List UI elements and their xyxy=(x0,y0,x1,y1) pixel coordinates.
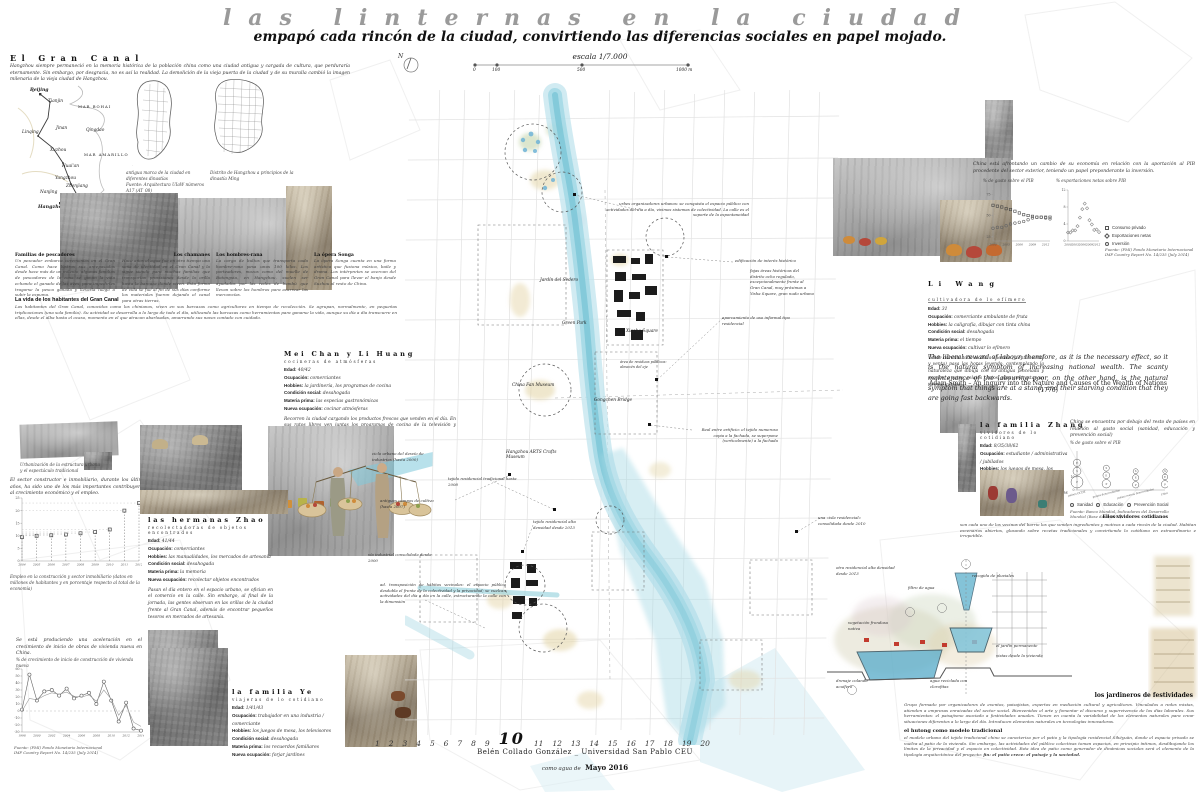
legend-label: Consumo privado xyxy=(1112,225,1146,230)
field-label: Ocupación: xyxy=(148,546,173,551)
field-label: Nueva ocupación: xyxy=(284,406,323,411)
mini-section-chamanes: Los chamanes Hace años el agua fue en ot… xyxy=(122,253,210,304)
chart-exportaciones-pib: 0481220002003200620092012 xyxy=(1056,186,1102,250)
legend-item: Consumo privado xyxy=(1105,224,1151,232)
plate-number: 18 xyxy=(663,739,673,748)
field-value: desahogada xyxy=(323,391,350,396)
svg-text:2012: 2012 xyxy=(134,563,142,567)
source-line: IMF Country Report No. 14/235 (July 2014… xyxy=(1105,252,1189,257)
figure-red xyxy=(988,486,998,500)
svg-text:10: 10 xyxy=(15,702,19,706)
scale-tick: 1000 m xyxy=(676,68,692,73)
mini-section-text: La carga de bultos que transporta cada h… xyxy=(216,258,308,298)
field-label: Edad: xyxy=(980,443,993,448)
svg-text:2011: 2011 xyxy=(120,563,129,567)
scale-tick: 500 xyxy=(577,68,585,73)
svg-text:S: S xyxy=(1105,466,1107,470)
svg-text:2012: 2012 xyxy=(1041,243,1050,247)
diamond-glyph-icon xyxy=(1104,233,1110,239)
mini-section-text: La ópera Songa cuenta en una forma artís… xyxy=(314,258,396,287)
china-label: Zhenjiang xyxy=(66,184,88,189)
poster-subtitle: empapó cada rincón de la ciudad, convirt… xyxy=(0,29,1200,45)
city-plan-map xyxy=(405,80,845,745)
profile-hermanas-zhao: las hermanas Zhao recolectadoras de obje… xyxy=(148,516,273,622)
svg-text:5: 5 xyxy=(17,547,19,551)
profile-field: Materia prima: la memoria xyxy=(148,569,273,577)
field-label: Ocupación: xyxy=(928,314,953,319)
svg-text:2007: 2007 xyxy=(61,563,70,567)
profile-field: Hobbies: las manualidades, los mercados … xyxy=(148,554,273,562)
plate-number: 13 xyxy=(571,739,581,748)
field-value: las manualidades, los mercados de artesa… xyxy=(169,555,271,560)
map-label-xiaohe-square: Xiaohe Square xyxy=(626,329,658,334)
svg-text:25: 25 xyxy=(15,496,19,500)
profile-subtitle: viajeras de lo cotidiano xyxy=(232,697,340,702)
mini-section-pescadores: Familias de pescadores Un pescador embar… xyxy=(15,253,115,298)
field-value: las especias gastronómicas xyxy=(316,399,378,404)
field-value: la caligrafía, dibujar con tinta china xyxy=(949,323,1031,328)
author-credit: Belén Collado González _ Universidad San… xyxy=(450,748,720,756)
jardineros-heading: los jardineros de festividades xyxy=(1000,692,1193,699)
field-value: 31 xyxy=(942,307,948,312)
svg-text:60: 60 xyxy=(15,667,19,671)
field-label: Hobbies: xyxy=(928,322,947,327)
date-prefix: como agua de xyxy=(542,766,581,772)
profile-field: Edad: 41/44 xyxy=(148,538,273,546)
svg-text:2014: 2014 xyxy=(136,734,144,738)
vividores-heading: Ellos vividores cotidianos xyxy=(1060,515,1168,520)
plate-number: 8 xyxy=(471,739,476,748)
circle-glyph-icon xyxy=(1096,503,1100,507)
plate-number: 6 xyxy=(444,739,449,748)
svg-text:2009: 2009 xyxy=(90,563,99,567)
social-legend: Sanidad Educación Prevención Social xyxy=(1070,501,1190,509)
historic-map-ming xyxy=(208,76,272,156)
svg-text:2009: 2009 xyxy=(1028,243,1037,247)
diagram-label: drenaje colando acuífero xyxy=(836,678,878,689)
plate-number: 12 xyxy=(552,739,562,748)
map-annotation: aparcamiento de uso informal tipo reside… xyxy=(722,315,804,326)
profile-field: Ocupación: trabajador en una industria /… xyxy=(232,713,340,729)
map-annotation: una «isla residencial» consolidada desde… xyxy=(818,515,880,526)
svg-text:50: 50 xyxy=(15,674,19,678)
svg-text:E: E xyxy=(1135,476,1137,480)
fruit-basket xyxy=(843,236,855,244)
chart-gasto-pib: 25507520002003200620092012 xyxy=(981,186,1053,250)
field-label: Nueva ocupación: xyxy=(232,752,271,757)
svg-text:0: 0 xyxy=(17,709,19,713)
field-value: 1/41/43 xyxy=(246,706,263,711)
map-annotation: área de residuos públicos: almacén del e… xyxy=(620,360,670,370)
map-annotation: antiguos campos de cultivo (hasta 2007) xyxy=(380,498,442,509)
conical-hat xyxy=(152,439,168,449)
field-value: la jardinería, los programas de cocina xyxy=(305,384,392,389)
plate-number-row: 1234567891011121314151617181920 xyxy=(375,730,710,748)
svg-text:S: S xyxy=(1076,469,1078,473)
plate-number: 1 xyxy=(375,739,380,748)
china-label: MAR BOHAI xyxy=(78,104,111,109)
svg-text:2008: 2008 xyxy=(92,734,101,738)
field-label: Hobbies: xyxy=(148,554,167,559)
svg-text:-10: -10 xyxy=(14,716,19,720)
poster-title: las linternas en la ciudad xyxy=(0,5,1200,31)
plate-number: 5 xyxy=(430,739,435,748)
svg-text:2002: 2002 xyxy=(47,734,56,738)
profile-paragraph: Pasan el día entero en el espacio urbano… xyxy=(148,588,273,622)
legend-label: Educación xyxy=(1103,502,1123,507)
field-value: el tiempo xyxy=(960,338,981,343)
diagram-label: agua reciclada con clorofitas xyxy=(930,678,974,689)
profile-field: Condición social: desahogada xyxy=(928,329,1044,337)
field-label: Edad: xyxy=(232,705,245,710)
map-annotation: edificación de interés histórico xyxy=(735,258,797,264)
mini-section-hombres-rana: Los hombres-rana La carga de bultos que … xyxy=(216,253,308,298)
field-value: desahogada xyxy=(187,562,214,567)
field-label: Nueva ocupación: xyxy=(148,577,187,582)
chart-vivienda-nueva: -30-20-100102030405060199820002002200420… xyxy=(10,665,144,741)
profile-name: las hermanas Zhao xyxy=(148,516,273,524)
diagram-label: filtro de agua xyxy=(908,585,948,591)
field-value: cultivar lo efímero xyxy=(968,346,1010,351)
svg-text:E: E xyxy=(1076,461,1078,465)
svg-text:P: P xyxy=(1135,483,1137,487)
profile-name: Li Wang xyxy=(928,280,1044,288)
social-chart-title: % de gasto sobre el PIB xyxy=(1070,440,1121,446)
source-line: Fuente: (FMI) Fondo Monetario Internacio… xyxy=(14,745,102,750)
field-value: 40/42 xyxy=(298,368,311,373)
svg-text:15: 15 xyxy=(15,521,19,525)
field-value: comerciantes xyxy=(310,376,341,381)
profile-name: la familia Zhang xyxy=(980,421,1068,429)
map-annotation: ad. transposición de hábitos vecinales: … xyxy=(380,582,506,605)
svg-text:10: 10 xyxy=(15,534,19,538)
vida-heading: La vida de los habitantes del Gran Canal xyxy=(15,297,119,303)
gdp-chart-title-2: % exportaciones netas sobre PIB xyxy=(1056,178,1126,184)
field-label: Condición social: xyxy=(928,329,966,334)
vida-text: Los habitantes del Gran Canal, conocidos… xyxy=(15,304,397,321)
diagram-label: el jardín permanente xyxy=(996,643,1052,649)
field-value: recolectar objetos encontrados xyxy=(188,578,259,583)
map-label-jardin: Jardín del Sedero xyxy=(540,278,578,283)
profile-name: la familia Ye xyxy=(232,688,340,696)
social-text: China se encuentra por debajo del resto … xyxy=(1070,420,1195,440)
map-annotation: urbes organizadores urbanos: se conquist… xyxy=(597,201,749,218)
svg-text:S: S xyxy=(1164,469,1166,473)
chart-gasto-social: 010países OCDEpaíses desarrolladospaíses… xyxy=(1068,447,1168,502)
svg-text:S: S xyxy=(1135,469,1137,473)
svg-text:P: P xyxy=(1164,482,1166,486)
fruit-basket-2 xyxy=(859,238,871,246)
detail-sections xyxy=(1148,552,1198,702)
svg-text:12: 12 xyxy=(1061,188,1065,192)
figure-purple xyxy=(1006,488,1017,503)
plate-number: 20 xyxy=(700,739,710,748)
map-annotation: tejido residencial alta densidad desde 2… xyxy=(533,519,591,530)
profile-subtitle: cultivadora de lo efímero xyxy=(928,297,1026,303)
scale-tick: 100 xyxy=(492,68,500,73)
plate-number: 10 xyxy=(499,729,525,748)
svg-text:30: 30 xyxy=(15,688,19,692)
svg-text:40: 40 xyxy=(15,681,19,685)
china-map-sketch: _ xyxy=(8,78,126,210)
profile-field: Ocupación: comerciante ambulante de frut… xyxy=(928,314,1044,322)
gdp-legend: Consumo privado Exportaciones netas Inve… xyxy=(1105,224,1151,248)
map-annotation: ciclo urbano del desvío de industrias (h… xyxy=(372,451,440,462)
housing-text: Se está produciendo una aceleración en e… xyxy=(16,638,142,658)
svg-text:2000: 2000 xyxy=(988,243,997,247)
circle-glyph-icon xyxy=(1070,503,1074,507)
legend-label: Sanidad xyxy=(1077,502,1093,507)
adam-smith-quote: The liberal reward of labour, therefore,… xyxy=(928,352,1168,403)
fruit-basket-5 xyxy=(966,246,982,258)
caption-text: antigua marca de la ciudad en diferentes… xyxy=(126,170,190,181)
profile-familia-ye: la familia Ye viajeras de lo cotidiano E… xyxy=(232,688,340,759)
svg-text:8: 8 xyxy=(1063,205,1065,209)
map-annotation: vía industrial consolidada desde 2000 xyxy=(368,552,434,563)
field-value: cocinar atmósferas xyxy=(324,407,368,412)
legend-label: Exportaciones netas xyxy=(1112,233,1151,238)
profile-field: Materia prima: el tiempo xyxy=(928,337,1044,345)
stool-green xyxy=(1038,500,1047,508)
field-label: Nueva ocupación: xyxy=(928,345,967,350)
diagram-label: recogida de pluviales xyxy=(972,573,1028,579)
field-label: Hobbies: xyxy=(284,383,303,388)
svg-text:países menos desarrollados: países menos desarrollados xyxy=(1117,487,1155,500)
profile-field: Edad: 31 xyxy=(928,306,1044,314)
plate-number: 2 xyxy=(389,739,394,748)
source-line: Fuente: (FMI) Fondo Monetario Internacio… xyxy=(1105,247,1193,252)
map-caption-1: antigua marca de la ciudad en diferentes… xyxy=(126,170,204,194)
svg-text:2006: 2006 xyxy=(47,563,56,567)
svg-text:25: 25 xyxy=(986,235,990,239)
svg-text:China: China xyxy=(1160,491,1168,497)
field-value: comerciante ambulante de fruta xyxy=(954,315,1028,320)
china-label: Jinan xyxy=(56,126,67,131)
plate-number: 7 xyxy=(457,739,462,748)
plate-number: 3 xyxy=(402,739,407,748)
svg-text:2012: 2012 xyxy=(121,734,130,738)
photo-hutong-alley xyxy=(150,648,228,746)
field-value: los juegos de mesa, los televisores xyxy=(253,729,332,734)
svg-text:P: P xyxy=(1076,480,1078,484)
svg-text:75: 75 xyxy=(986,192,990,196)
svg-text:2010: 2010 xyxy=(105,563,114,567)
gdp-chart-title-1: % de gasto sobre el PIB xyxy=(983,178,1034,184)
profile-field: Ocupación: estudiante / administrativa /… xyxy=(980,451,1068,467)
svg-text:P: P xyxy=(1105,482,1107,486)
hutong-text: el modelo urbano del tejido tradicional … xyxy=(904,735,1194,758)
vividores-text: son cada uno de los vecinos del barrio l… xyxy=(960,522,1196,539)
svg-text:E: E xyxy=(1164,475,1166,479)
plate-number: 14 xyxy=(589,739,599,748)
construction-chart-caption: Empleo en la construcción y sector inmob… xyxy=(10,574,148,592)
cooking-pot xyxy=(391,691,405,701)
svg-text:2005: 2005 xyxy=(32,563,41,567)
svg-text:2000: 2000 xyxy=(32,734,41,738)
svg-text:1998: 1998 xyxy=(18,734,26,738)
svg-text:E: E xyxy=(1105,473,1107,477)
quote-attribution: Adam Smith – An Inquiry into the Nature … xyxy=(928,380,1168,394)
mini-section-text: Hace años el agua fue en otro tiempo una… xyxy=(122,258,210,304)
field-label: Condición social: xyxy=(284,390,322,395)
svg-text:2008: 2008 xyxy=(76,563,85,567)
construction-photo-caption: Urbanización de la estructura urbana y e… xyxy=(20,462,100,474)
map-annotation: Real entre artificio: el tejido numeroso… xyxy=(692,427,778,444)
profile-field: Hobbies: la caligrafía, dibujar con tint… xyxy=(928,322,1044,330)
historic-map-dynasties: · xyxy=(128,76,182,168)
diagram-label: vistas desde la vivienda xyxy=(996,653,1052,659)
legend-label: Prevención Social xyxy=(1134,502,1168,507)
field-label: Ocupación: xyxy=(232,713,257,718)
map-label-gongchen-bridge: Gongchen Bridge xyxy=(594,398,632,403)
north-label: N xyxy=(398,53,403,60)
date-line: como agua de Mayo 2016 xyxy=(450,757,720,775)
field-value: 8/35/38/62 xyxy=(994,444,1019,449)
map-annotation: tejido residencial tradicional hasta 200… xyxy=(448,476,520,487)
profile-field: Nueva ocupación: forjar jardines xyxy=(232,752,340,760)
profile-field: Nueva ocupación: recolectar objetos enco… xyxy=(148,577,273,585)
field-label: Materia prima: xyxy=(284,398,315,403)
circle-glyph-icon xyxy=(1105,242,1109,246)
field-label: Edad: xyxy=(148,538,161,543)
fruit-basket-3 xyxy=(875,237,887,245)
map-annotation: fajas áreas históricas del distrito ocho… xyxy=(750,268,814,296)
photo-tree-detail xyxy=(958,424,976,492)
map-caption-2: Distrito de Hangzhou a principios de la … xyxy=(210,170,310,182)
profile-field: Condición social: desahogada xyxy=(232,736,340,744)
svg-text:10: 10 xyxy=(1070,475,1074,479)
photo-tree-street xyxy=(985,100,1013,160)
svg-text:2004: 2004 xyxy=(17,563,26,567)
field-label: Hobbies: xyxy=(232,728,251,733)
date: Mayo 2016 xyxy=(585,763,628,772)
svg-text:2012: 2012 xyxy=(1092,243,1101,247)
field-label: Materia prima: xyxy=(928,337,959,342)
field-label: Materia prima: xyxy=(148,569,179,574)
profile-field: Condición social: desahogada xyxy=(148,561,273,569)
poster: las linternas en la ciudad empapó cada r… xyxy=(0,0,1200,792)
field-value: forjar jardines xyxy=(272,753,305,758)
conical-hat-2 xyxy=(192,435,208,445)
field-label: Ocupación: xyxy=(980,451,1005,456)
circle-glyph-icon xyxy=(1127,503,1131,507)
plate-number: 17 xyxy=(645,739,655,748)
china-label: MAR AMARILLO xyxy=(84,152,129,157)
field-label: Condición social: xyxy=(232,736,270,741)
field-value: 41/44 xyxy=(162,539,175,544)
field-value: la memoria xyxy=(180,570,206,575)
svg-text:·: · xyxy=(132,163,133,167)
section-heading-gran-canal: El Gran Canal xyxy=(10,53,144,63)
scale-tick: 0 xyxy=(473,68,476,73)
plate-number: 19 xyxy=(682,739,692,748)
profile-subtitle: recolectadoras de objetos encontrados xyxy=(148,525,273,535)
profile-subtitle: vividores de lo cotidiano xyxy=(980,430,1068,440)
svg-text:2006: 2006 xyxy=(77,734,86,738)
plate-number: 15 xyxy=(608,739,618,748)
hutong-bold-tail: fin: el patio crece: el paisaje y la soc… xyxy=(983,752,1080,757)
field-label: Condición social: xyxy=(148,561,186,566)
square-glyph-icon xyxy=(1105,226,1109,230)
field-label: Edad: xyxy=(928,306,941,311)
legend-label: Inversión xyxy=(1112,241,1129,246)
svg-text:-20: -20 xyxy=(14,723,19,727)
jardineros-text: Grupo formado por organizadores de event… xyxy=(904,702,1194,725)
map-label-fan-museum: China Fan Museum xyxy=(512,383,554,388)
field-label: Ocupación: xyxy=(284,375,309,380)
plate-number: 4 xyxy=(416,739,421,748)
field-label: Materia prima: xyxy=(232,744,263,749)
map-label-green-park: Green Park xyxy=(562,321,587,326)
chart-empleo-construccion: 0510152025200420052006200720082009201020… xyxy=(10,494,142,570)
photo-family-table xyxy=(980,470,1064,516)
field-value: desahogada xyxy=(271,737,298,742)
svg-text:2004: 2004 xyxy=(62,734,71,738)
mini-section-opera: La ópera Songa La ópera Songa cuenta en … xyxy=(314,253,396,287)
plate-number: 11 xyxy=(534,739,544,748)
china-label: Xuzhou xyxy=(50,148,66,153)
scale-bar xyxy=(395,55,705,79)
profile-field: Edad: 1/41/43 xyxy=(232,705,340,713)
source-line: IMF Country Report No. 14/235 (July 2014… xyxy=(14,750,98,755)
profile-field: Materia prima: los recuerdos familiares xyxy=(232,744,340,752)
china-label: Huai'an xyxy=(62,164,79,169)
hutong-heading: el hutong como modelo tradicional xyxy=(904,728,1002,734)
field-value: comerciantes xyxy=(174,547,205,552)
china-label: Qingdao xyxy=(86,128,104,133)
svg-text:países OCDE: países OCDE xyxy=(1068,489,1086,497)
caption-source: Fuente: Arquitectura UIaW números A17 (A… xyxy=(126,182,204,193)
map-label-crafts-museum: Hangzhou ARTS Crafts Museum xyxy=(506,450,568,460)
svg-text:2010: 2010 xyxy=(107,734,116,738)
svg-text:2003: 2003 xyxy=(1001,243,1010,247)
svg-text:50: 50 xyxy=(986,214,990,218)
china-label: Nanjing xyxy=(40,190,57,195)
economy-text: China está afrontando un cambio de su ec… xyxy=(973,162,1195,175)
diagram-label: vegetación frondosa nativa xyxy=(848,620,892,631)
svg-text:20: 20 xyxy=(15,509,19,513)
china-label: Linqing xyxy=(22,130,39,135)
profile-field: Ocupación: comerciantes xyxy=(148,546,273,554)
profile-field: Edad: 8/35/38/62 xyxy=(980,443,1068,451)
profile-field: Hobbies: los juegos de mesa, los televis… xyxy=(232,728,340,736)
fruit-basket-4 xyxy=(946,244,962,256)
housing-source: Fuente: (FMI) Fondo Monetario Internacio… xyxy=(14,745,154,756)
field-value: los recuerdos familiares xyxy=(264,745,319,750)
china-label: Yangzhou xyxy=(55,176,76,181)
field-label: Edad: xyxy=(284,367,297,372)
field-value: desahogada xyxy=(967,330,994,335)
economy-source: Fuente: (FMI) Fondo Monetario Internacio… xyxy=(1105,247,1195,258)
mini-section-text: Un pescador embarca ceremonias en el Gra… xyxy=(15,258,115,298)
china-label: Beijing xyxy=(30,88,49,93)
china-label: Tianjin xyxy=(48,99,63,104)
svg-text:4: 4 xyxy=(1063,222,1065,226)
svg-text:2006: 2006 xyxy=(1015,243,1024,247)
svg-text:20: 20 xyxy=(15,695,19,699)
plate-number: 16 xyxy=(626,739,636,748)
photo-bread-baskets xyxy=(140,490,288,514)
legend-item: Exportaciones netas xyxy=(1105,232,1151,240)
plate-number: 9 xyxy=(485,739,490,748)
